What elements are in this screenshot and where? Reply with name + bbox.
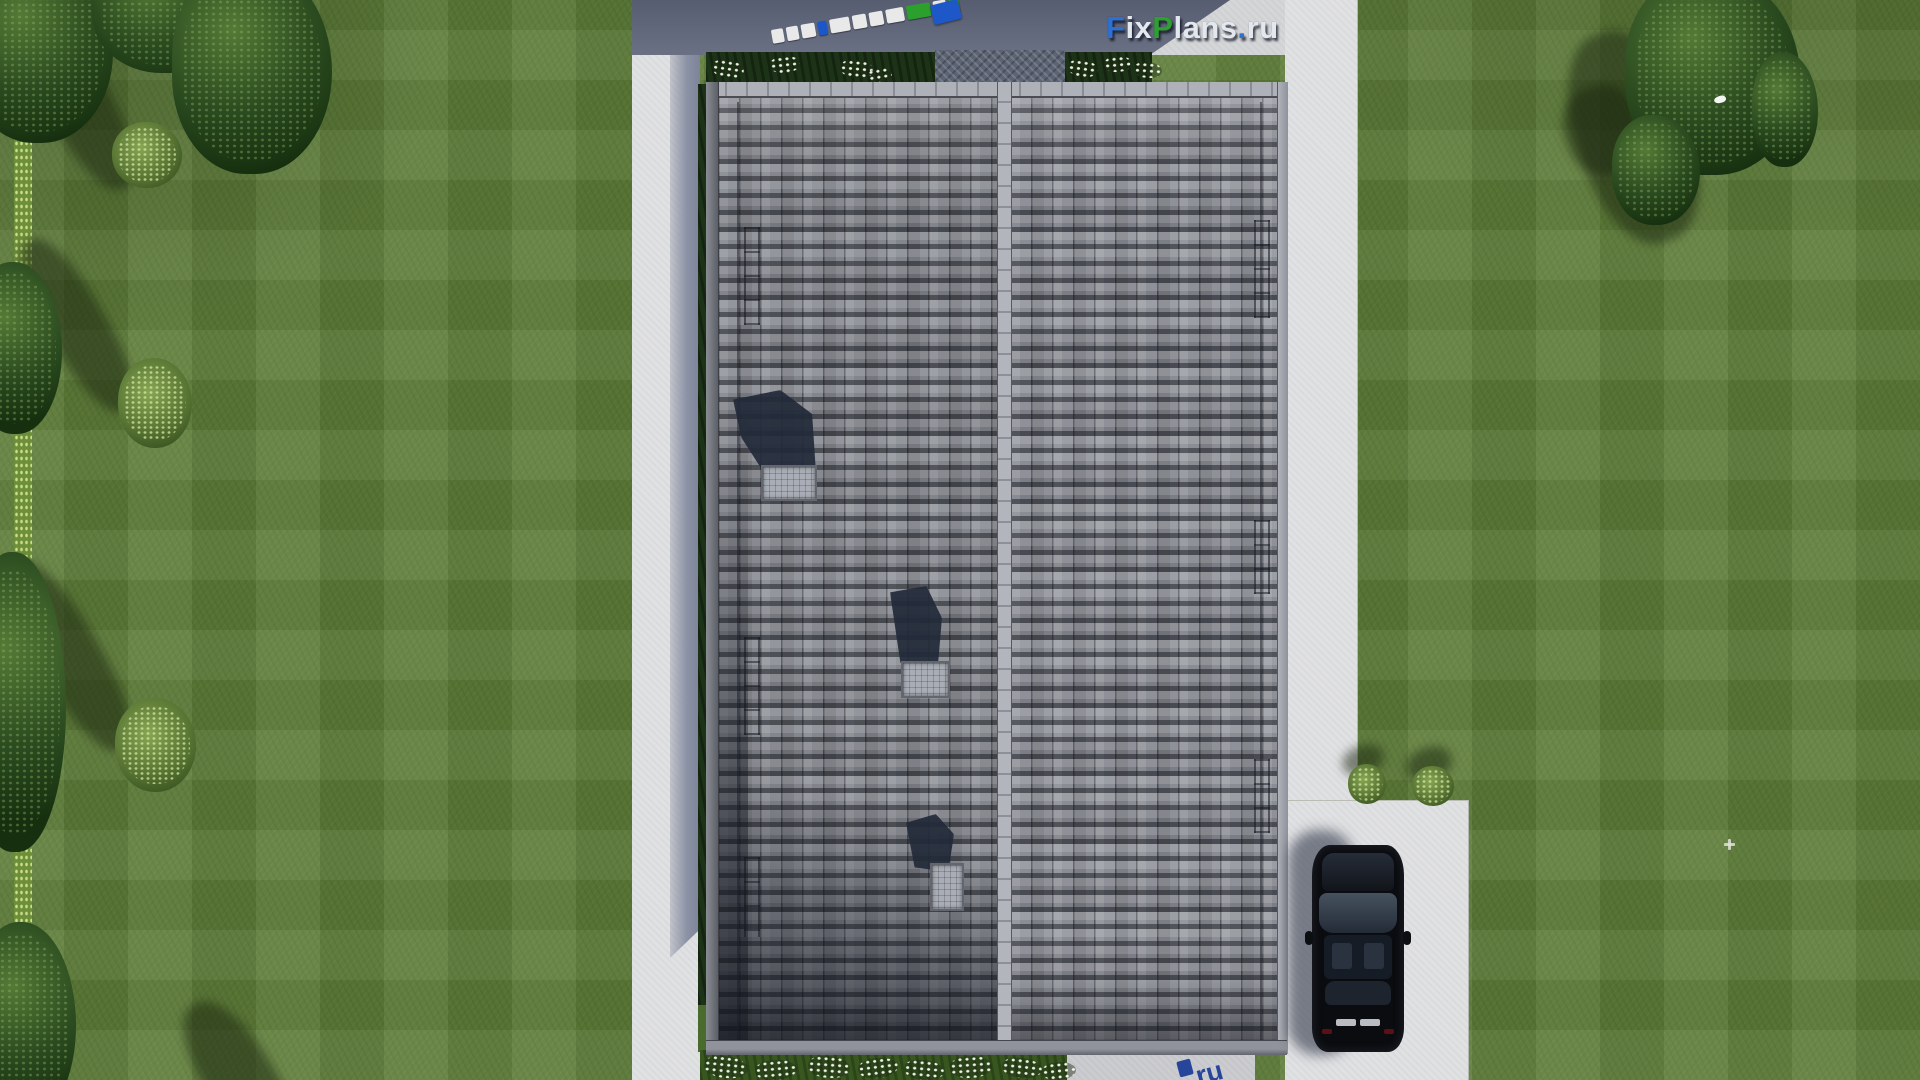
bottom-pavement-patch: [1067, 1052, 1255, 1080]
roof-ladder: [744, 227, 760, 325]
watermark-part: .: [1238, 10, 1247, 45]
marker-segment-white: [786, 25, 800, 41]
car-rear-window: [1325, 981, 1391, 1005]
car-cabin: [1324, 935, 1392, 979]
roof-right-rake-edge: [1277, 82, 1288, 1054]
sprinkler: [1728, 839, 1731, 850]
roof-right-slope: [1010, 96, 1277, 1040]
roof-center-ridge-cap: [997, 82, 1012, 1054]
watermark-part: lans: [1173, 10, 1237, 45]
roof-ladder: [1254, 520, 1270, 594]
car-taillight: [1322, 1029, 1332, 1034]
chimney: [930, 863, 964, 911]
roof-left-rake-edge: [706, 82, 719, 1054]
entry-terrace: [935, 50, 1065, 84]
house-shadow-on-walkway: [670, 0, 700, 958]
car-seat: [1332, 943, 1352, 969]
aerial-house-site-render: FixPlans.ru ru: [0, 0, 1920, 1080]
chimney: [761, 465, 817, 501]
marker-segment-white: [800, 22, 816, 38]
watermark-part: F: [1106, 10, 1125, 45]
car-windshield: [1319, 893, 1397, 933]
watermark-part: P: [1152, 10, 1173, 45]
car-taillight: [1384, 1029, 1394, 1034]
car-mirror: [1403, 931, 1411, 945]
car-light-bar: [1360, 1019, 1380, 1026]
tree: [1752, 52, 1818, 167]
shrub: [1348, 764, 1386, 804]
house-roof: [706, 82, 1287, 1054]
roof-ladder: [1254, 220, 1270, 318]
marker-segment-blue: [817, 20, 828, 35]
roof-ladder: [744, 637, 760, 735]
right-walkway: [1285, 0, 1358, 808]
shrub: [1412, 766, 1454, 806]
car-light-bar: [1336, 1019, 1356, 1026]
roof-ladder: [744, 857, 760, 937]
marker-segment-white: [852, 13, 868, 29]
shrub: [115, 698, 196, 792]
watermark-part: ru: [1247, 10, 1279, 45]
left-hedge-row: [14, 0, 32, 1080]
watermark-part: ix: [1125, 10, 1152, 45]
marker-segment-white: [868, 10, 884, 26]
roof-ladder: [1254, 759, 1270, 833]
car-mirror: [1305, 931, 1313, 945]
roof-cable-left: [737, 102, 739, 1040]
marker-segment-white: [771, 28, 785, 44]
chimney: [901, 661, 950, 698]
car-hood: [1322, 853, 1394, 891]
roof-gutter: [706, 1040, 1287, 1055]
car: [1312, 845, 1404, 1052]
shrub: [118, 358, 192, 448]
shrub: [112, 122, 182, 188]
car-seat: [1364, 943, 1384, 969]
tree: [1612, 115, 1700, 225]
fixplans-watermark: FixPlans.ru: [1106, 10, 1279, 46]
